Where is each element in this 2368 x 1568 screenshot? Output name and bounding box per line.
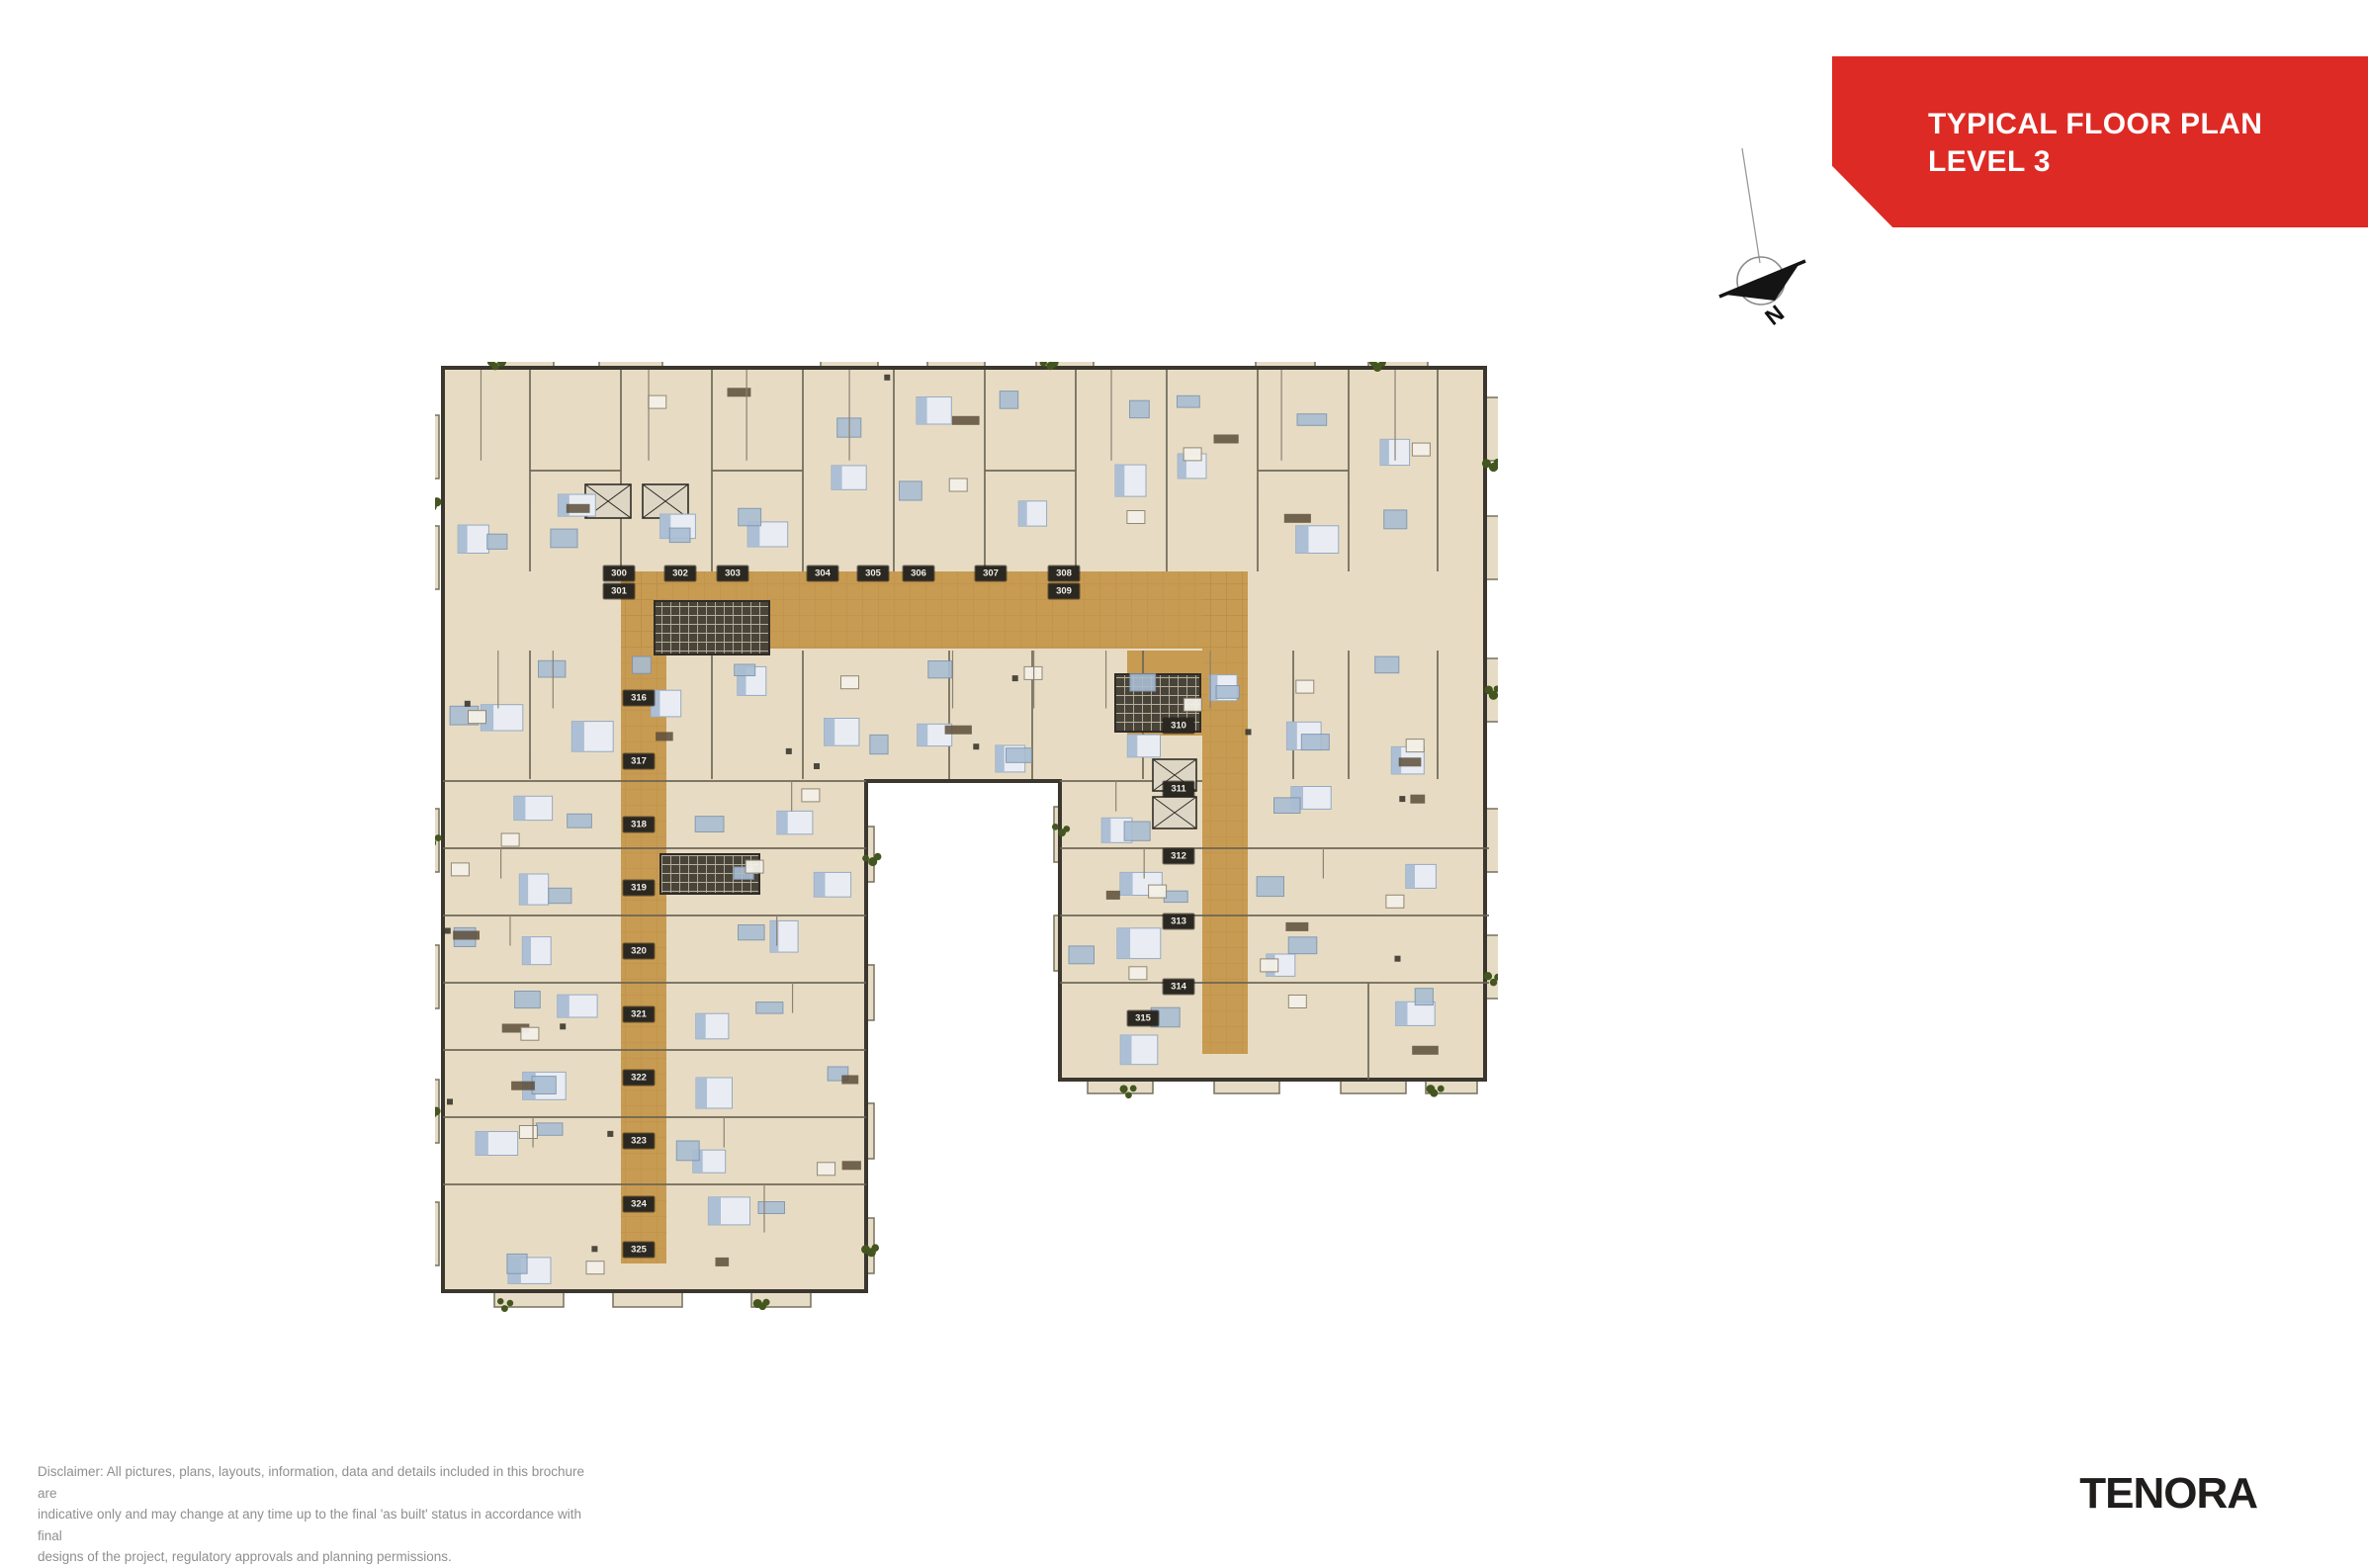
unit-tag: 302	[665, 566, 696, 581]
floor-plan: 3003013023033043053063073083093103113123…	[435, 362, 1498, 1343]
page-title-line1: TYPICAL FLOOR PLAN	[1928, 106, 2262, 143]
unit-tag: 316	[624, 691, 655, 706]
unit-tag: 303	[718, 566, 748, 581]
page-title-line2: LEVEL 3	[1928, 143, 2262, 181]
unit-tag: 317	[624, 754, 655, 769]
disclaimer-text: Disclaimer: All pictures, plans, layouts…	[38, 1461, 591, 1568]
unit-tags-layer: 3003013023033043053063073083093103113123…	[435, 362, 1498, 1343]
unit-tag: 325	[624, 1243, 655, 1258]
unit-tag: 309	[1049, 584, 1080, 599]
unit-tag: 304	[808, 566, 838, 581]
unit-tag: 300	[604, 566, 635, 581]
compass-north-icon: N	[1713, 146, 1822, 344]
unit-tag: 308	[1049, 566, 1080, 581]
unit-tag: 311	[1164, 782, 1194, 797]
unit-tag: 320	[624, 944, 655, 959]
unit-tag: 322	[624, 1071, 655, 1086]
title-banner: TYPICAL FLOOR PLAN LEVEL 3	[1832, 56, 2368, 227]
unit-tag: 301	[604, 584, 635, 599]
unit-tag: 321	[624, 1007, 655, 1022]
unit-tag: 313	[1164, 915, 1194, 929]
unit-tag: 306	[904, 566, 934, 581]
unit-tag: 324	[624, 1197, 655, 1212]
unit-tag: 319	[624, 881, 655, 896]
unit-tag: 307	[976, 566, 1007, 581]
brand-logo: TENORA	[2079, 1469, 2257, 1519]
brochure-page: TYPICAL FLOOR PLAN LEVEL 3 N	[0, 0, 2368, 1542]
unit-tag: 305	[858, 566, 889, 581]
unit-tag: 310	[1164, 719, 1194, 734]
unit-tag: 318	[624, 818, 655, 832]
unit-tag: 312	[1164, 849, 1194, 864]
unit-tag: 323	[624, 1134, 655, 1149]
unit-tag: 315	[1128, 1011, 1159, 1026]
unit-tag: 314	[1164, 980, 1194, 995]
page-title: TYPICAL FLOOR PLAN LEVEL 3	[1928, 106, 2262, 181]
